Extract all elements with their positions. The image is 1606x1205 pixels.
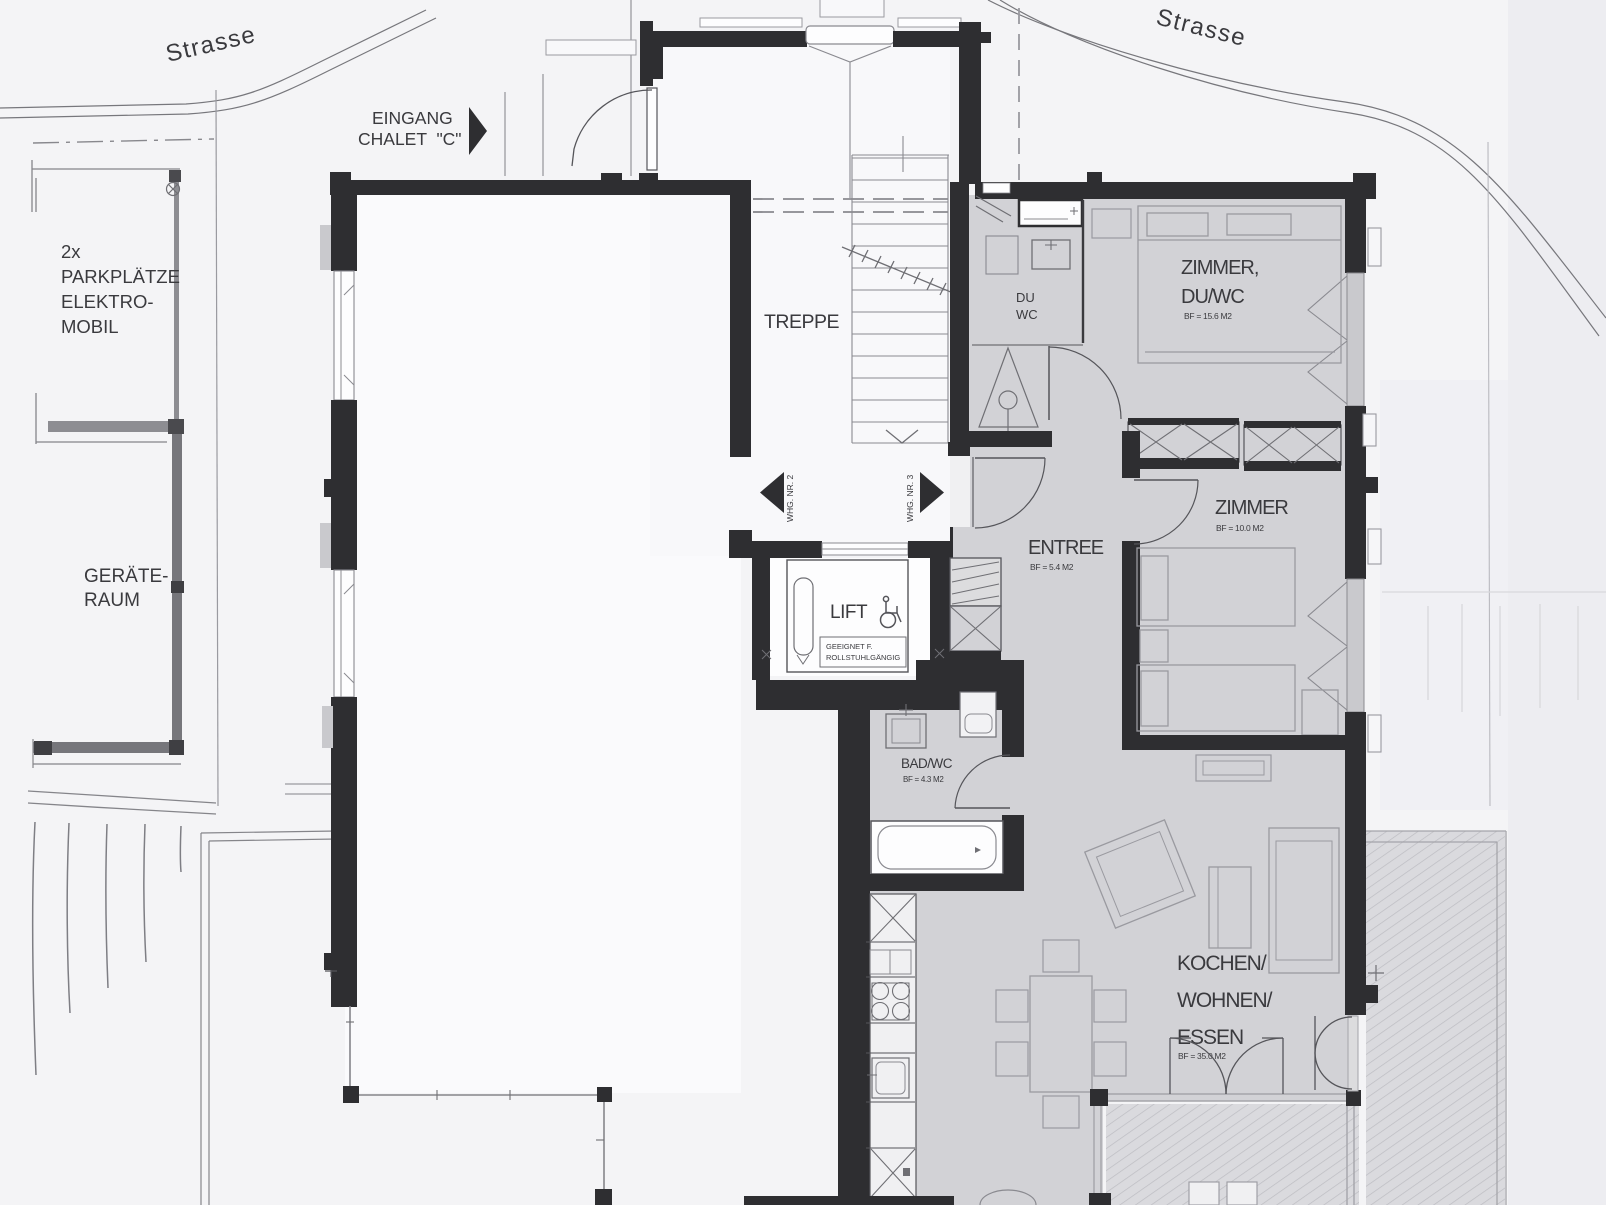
svg-text:2x: 2x <box>61 241 81 262</box>
svg-text:DU: DU <box>1016 290 1035 305</box>
svg-text:ELEKTRO-: ELEKTRO- <box>61 291 154 312</box>
svg-text:CHALET "C": CHALET "C" <box>358 129 462 149</box>
svg-text:TREPPE: TREPPE <box>764 311 840 333</box>
svg-text:WC: WC <box>1016 307 1038 322</box>
svg-text:DU/WC: DU/WC <box>1181 286 1244 308</box>
svg-text:BF = 35.0 M2: BF = 35.0 M2 <box>1178 1051 1226 1061</box>
svg-text:GEEIGNET F.: GEEIGNET F. <box>826 642 873 651</box>
svg-text:BF = 15.6 M2: BF = 15.6 M2 <box>1184 311 1232 321</box>
svg-text:WHG. NR. 2: WHG. NR. 2 <box>785 475 795 522</box>
svg-text:PARKPLÄTZE: PARKPLÄTZE <box>61 266 180 287</box>
svg-text:LIFT: LIFT <box>830 602 868 623</box>
svg-text:MOBIL: MOBIL <box>61 316 119 337</box>
svg-text:ZIMMER,: ZIMMER, <box>1181 257 1258 279</box>
svg-text:BAD/WC: BAD/WC <box>901 756 953 771</box>
svg-text:ENTREE: ENTREE <box>1028 537 1104 559</box>
svg-text:WOHNEN/: WOHNEN/ <box>1177 989 1273 1012</box>
svg-text:GERÄTE-: GERÄTE- <box>84 566 168 587</box>
svg-text:EINGANG: EINGANG <box>372 108 453 128</box>
svg-text:ROLLSTUHLGÄNGIG: ROLLSTUHLGÄNGIG <box>826 653 900 662</box>
svg-text:WHG. NR. 3: WHG. NR. 3 <box>905 475 915 522</box>
svg-text:ZIMMER: ZIMMER <box>1215 497 1288 519</box>
svg-text:BF = 10.0 M2: BF = 10.0 M2 <box>1216 523 1264 533</box>
svg-text:KOCHEN/: KOCHEN/ <box>1177 952 1267 975</box>
svg-text:BF = 4.3 M2: BF = 4.3 M2 <box>903 775 944 784</box>
svg-text:BF = 5.4 M2: BF = 5.4 M2 <box>1030 562 1074 572</box>
svg-text:RAUM: RAUM <box>84 590 140 611</box>
